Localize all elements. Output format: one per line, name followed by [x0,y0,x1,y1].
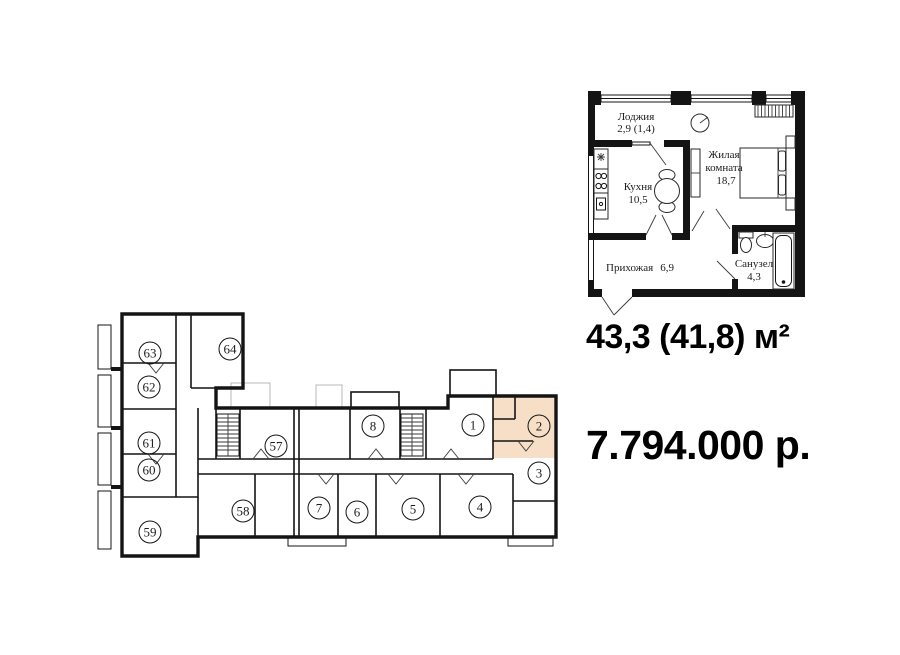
apartment-number: 3 [536,466,543,481]
balcony-outlines [98,325,553,549]
apartment-number: 62 [143,380,156,395]
apartment-number: 60 [143,463,156,478]
apartment-number: 5 [410,502,417,517]
apartment-unit-63[interactable]: 63 [139,342,161,364]
apartment-unit-3[interactable]: 3 [528,462,550,484]
stairwell-symbol-right [401,414,423,456]
apartment-unit-1[interactable]: 1 [462,414,484,436]
apartment-unit-59[interactable]: 59 [139,521,161,543]
apartment-area-text: 43,3 (41,8) м² [586,318,789,357]
armchair-symbol [691,114,709,132]
living-label-line2: комната [705,162,742,174]
building-outline [122,314,556,556]
dresser-symbol [691,149,700,197]
stairwell-symbol-left [217,414,239,456]
apartment-number: 58 [237,504,250,519]
bath-area-label: 4,3 [747,271,761,283]
bath-label: Санузел [735,258,774,270]
kitchen-sink-symbol [594,193,608,219]
apartment-unit-8[interactable]: 8 [362,415,384,437]
apartment-number: 1 [470,418,477,433]
apartment-unit-6[interactable]: 6 [346,501,368,523]
apartment-number: 57 [270,439,284,454]
hall-label: Прихожая6,9 [606,262,674,274]
kitchen-label: Кухня [624,181,652,193]
apartment-number: 7 [316,501,323,516]
building-floor-plan: 63 64 62 61 60 59 57 58 [88,311,560,561]
toilet-symbol [739,232,753,253]
apartment-unit-4[interactable]: 4 [469,496,491,518]
apartment-unit-58[interactable]: 58 [232,500,254,522]
apartment-number: 2 [536,419,543,434]
loggia-area-label: 2,9 (1,4) [617,123,655,135]
kitchen-area-label: 10,5 [628,194,648,206]
vent-symbol [597,153,605,161]
living-label-line1: Жилая [708,149,739,161]
bathtub-symbol [773,233,794,289]
apartment-unit-7[interactable]: 7 [308,497,330,519]
loggia-label: Лоджия [618,111,655,123]
apartment-number: 4 [477,500,484,515]
dining-table-symbol [655,170,680,213]
apartment-number: 61 [143,436,156,451]
apartment-unit-60[interactable]: 60 [138,459,160,481]
apartment-number: 6 [354,505,361,520]
listing-floorplan-page: Лоджия 2,9 (1,4) Кухня 10,5 Жилая комнат… [0,0,900,655]
apartment-detail-plan: Лоджия 2,9 (1,4) Кухня 10,5 Жилая комнат… [588,91,812,323]
apartment-unit-61[interactable]: 61 [138,432,160,454]
apartment-number: 59 [144,525,157,540]
apartment-number: 8 [370,419,377,434]
apartment-unit-64[interactable]: 64 [219,338,241,360]
apartment-price-text: 7.794.000 р. [586,422,810,469]
wardrobe-symbol [755,105,793,117]
washbasin-symbol [757,232,774,248]
apartment-unit-5[interactable]: 5 [402,498,424,520]
apartment-unit-62[interactable]: 62 [138,376,160,398]
stove-symbol [594,169,608,193]
living-window [691,95,795,102]
loggia-window [601,95,671,102]
living-area-label: 18,7 [716,175,736,187]
apartment-unit-57[interactable]: 57 [265,435,287,457]
apartment-number: 63 [144,346,157,361]
bed-symbol [740,136,795,210]
apartment-number: 64 [224,342,238,357]
